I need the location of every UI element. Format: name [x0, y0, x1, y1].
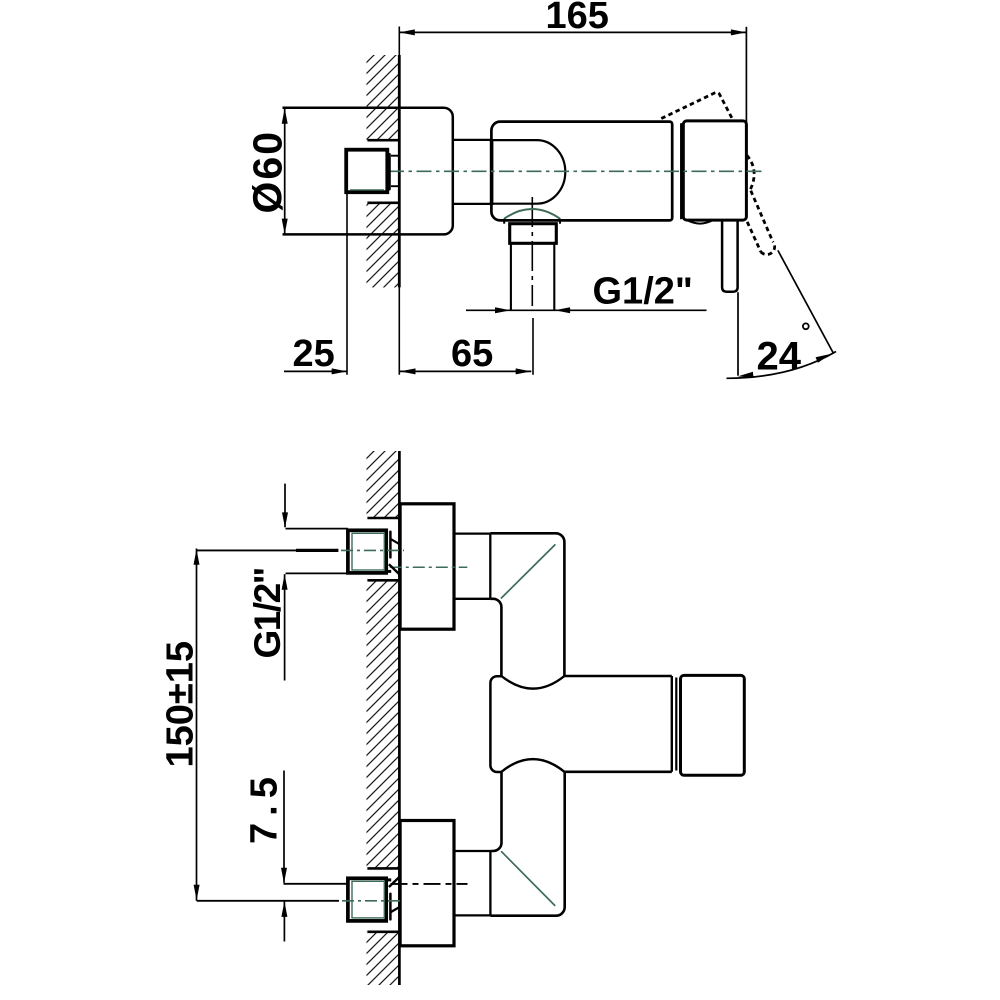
svg-text:24: 24: [757, 335, 802, 379]
svg-text:G1/2": G1/2": [247, 568, 288, 658]
svg-text:25: 25: [293, 333, 335, 375]
svg-text:165: 165: [546, 0, 609, 37]
svg-text:Ø60: Ø60: [245, 130, 291, 214]
svg-text:65: 65: [451, 333, 493, 375]
svg-text:G1/2": G1/2": [593, 271, 693, 313]
svg-text:7.5: 7.5: [244, 770, 286, 844]
svg-text:150±15: 150±15: [159, 641, 201, 768]
